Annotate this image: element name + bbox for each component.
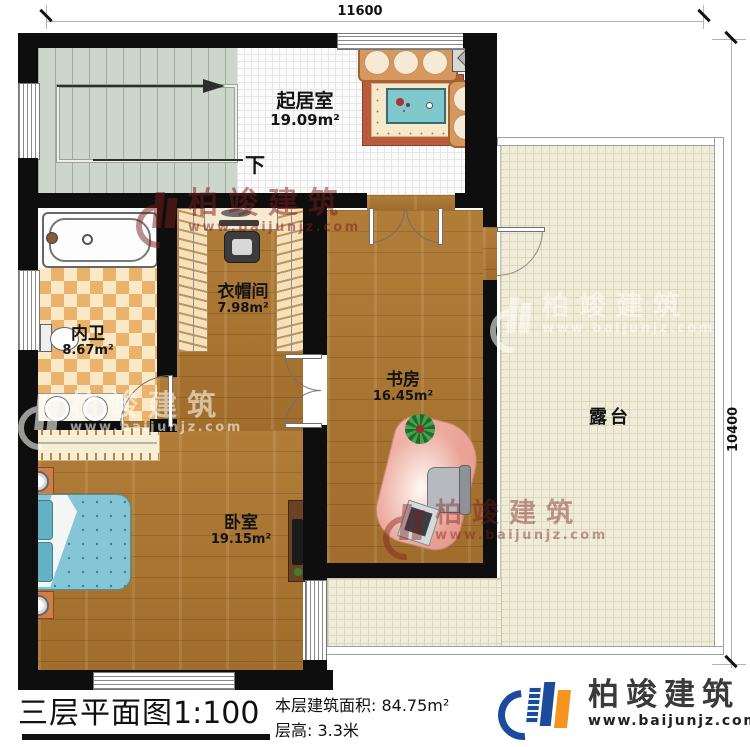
wardrobe-rod [291, 209, 292, 351]
door-living-study-leaf-right [438, 208, 443, 245]
bathtub-drain [82, 234, 93, 245]
door-bathroom-leaf [168, 375, 173, 427]
dimension-line-right [731, 40, 732, 668]
wall-left-3 [18, 350, 38, 690]
pillow-bottom [36, 542, 53, 582]
terrace-railing-right [714, 137, 724, 655]
company-logo: 柏竣建筑 www.baijunjz.com [492, 680, 750, 734]
door-cloak-study-leaf-lower [285, 423, 322, 428]
stool-seat [232, 239, 252, 255]
plan-area-line: 本层建筑面积: 84.75m² [275, 694, 449, 719]
door-living-study-leaf-left [369, 208, 374, 245]
rug-fringe-bottom [23, 453, 159, 460]
stair-arrow-head [203, 79, 225, 93]
floor-plan: 下 [0, 0, 750, 747]
bedroom-label: 卧室 19.15m² [181, 514, 301, 548]
window-bedroom-east [305, 580, 327, 662]
chair-back [459, 465, 471, 515]
wall-bathroom-bottom [18, 421, 122, 430]
plant-center [416, 425, 424, 433]
terrace-railing-bottom [324, 646, 724, 655]
stool [224, 231, 260, 263]
wall-center-vertical-2 [303, 425, 327, 580]
company-logo-icon [492, 680, 584, 734]
wall-top-left [18, 33, 337, 48]
stair-down-label: 下 [245, 149, 265, 178]
stair-down-line [93, 159, 243, 161]
bathtub-basin [49, 218, 151, 262]
living-room-label: 起居室 19.09m² [245, 91, 365, 129]
window-left-stairs [18, 83, 40, 160]
bathroom-label: 内卫 8.67m² [38, 325, 138, 359]
dimension-ext-right-top [712, 39, 746, 40]
door-terrace-leaf [497, 227, 545, 232]
bed [33, 494, 131, 590]
wall-study-bottom [327, 563, 497, 578]
plan-title-underline [22, 734, 270, 740]
dimension-width-label: 11600 [330, 4, 390, 19]
dimension-line-top [47, 21, 704, 22]
plan-height-line: 层高: 3.3米 [275, 719, 449, 744]
rug-center-line [25, 442, 157, 444]
window-top [337, 33, 465, 50]
wall-east-study-2 [483, 280, 497, 577]
terrace-doorway-floor [483, 227, 497, 280]
terrace-floor [500, 144, 716, 648]
window-left-bathroom [18, 270, 40, 352]
wall-center-vertical-1 [303, 195, 327, 355]
bathtub [42, 212, 158, 268]
plan-title-row: 三层平面图1:100 [18, 688, 259, 732]
wardrobe-right [276, 208, 306, 352]
wall-east-study-1 [483, 195, 497, 227]
office-chair [427, 467, 471, 513]
dressing-mirror [221, 209, 251, 217]
sink-left [44, 396, 70, 422]
wall-left-1 [18, 33, 38, 83]
desk-plant [405, 414, 435, 444]
dimension-height-label: 10400 [726, 398, 741, 452]
dressing-table [204, 206, 278, 230]
terrace-railing-top [497, 137, 724, 146]
wall-east-upper [465, 33, 497, 195]
cloakroom-label: 衣帽间 7.98m² [183, 283, 303, 317]
wardrobe-rod [193, 209, 194, 351]
company-name: 柏竣建筑 [588, 680, 750, 711]
sink-right [82, 396, 108, 422]
coffee-table [386, 88, 446, 124]
cabinet-plant [294, 568, 302, 576]
wall-bathroom-east [157, 195, 177, 377]
terrace-floor-lower [327, 578, 502, 648]
plan-info: 本层建筑面积: 84.75m² 层高: 3.3米 [275, 694, 449, 744]
door-cloak-study-leaf-upper [285, 354, 322, 359]
dressing-items [219, 220, 259, 226]
stair-arrow-line [57, 85, 205, 87]
stair-railing [57, 85, 237, 162]
wall-left-2 [18, 158, 38, 270]
terrace-label: 露台 [560, 408, 660, 428]
study-label: 书房 16.45m² [343, 371, 463, 405]
bedroom-rug [22, 427, 160, 461]
monitor-screen [404, 507, 432, 537]
dimension-ext-right-bottom [712, 664, 746, 665]
coffee-table-cup [426, 102, 433, 109]
pillow-top [36, 500, 53, 540]
company-website: www.baijunjz.com [588, 713, 750, 729]
bathtub-faucet [46, 232, 58, 244]
plan-scale: 1:100 [173, 696, 259, 731]
coffee-table-flowers [396, 98, 404, 106]
plan-title: 三层平面图 [18, 696, 173, 731]
